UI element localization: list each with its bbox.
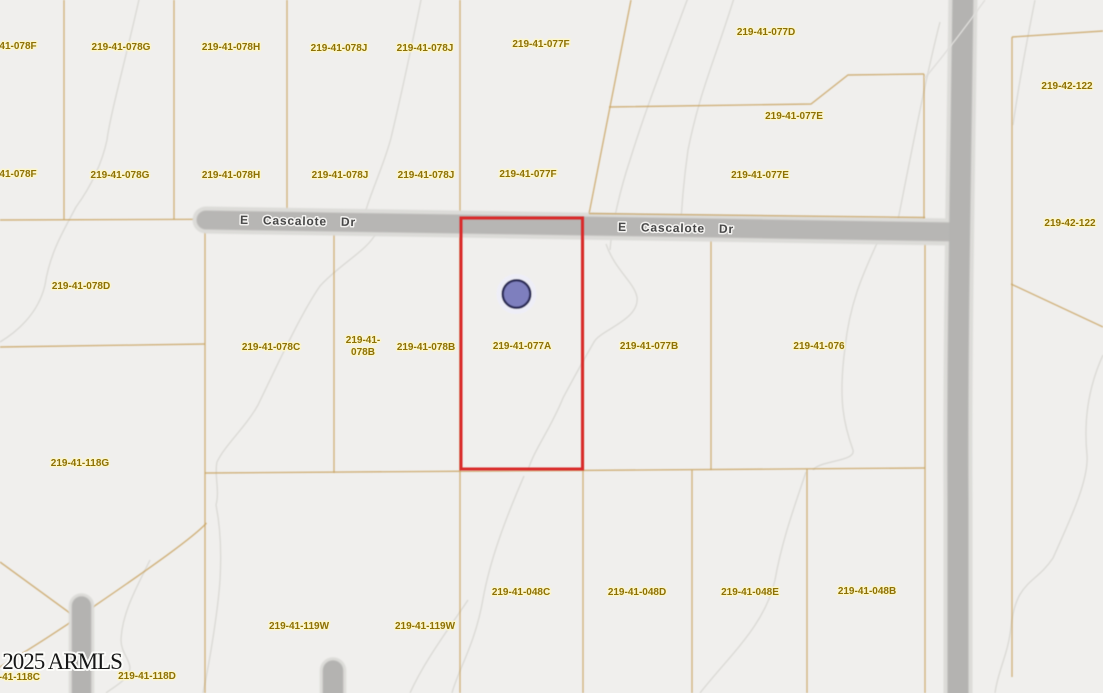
svg-text:E Cascalote Dr: E Cascalote Dr xyxy=(618,220,734,236)
svg-text:219-41-048B: 219-41-048B xyxy=(838,586,896,597)
svg-text:219-41-078J: 219-41-078J xyxy=(312,170,369,181)
svg-text:219-41-078J: 219-41-078J xyxy=(311,43,368,54)
svg-text:219-41-077A: 219-41-077A xyxy=(493,341,551,352)
svg-text:219-41-078G: 219-41-078G xyxy=(91,170,150,181)
svg-text:219-41-078J: 219-41-078J xyxy=(397,43,454,54)
svg-text:219-41-078F: 219-41-078F xyxy=(0,169,37,180)
svg-text:219-41-077F: 219-41-077F xyxy=(512,39,569,50)
svg-text:219-41-076: 219-41-076 xyxy=(793,341,845,352)
svg-text:219-41-119W: 219-41-119W xyxy=(269,621,330,632)
svg-text:219-41-077F: 219-41-077F xyxy=(499,169,556,180)
svg-text:219-41-078D: 219-41-078D xyxy=(52,281,110,292)
svg-text:078B: 078B xyxy=(351,347,375,358)
svg-text:219-42-122: 219-42-122 xyxy=(1044,218,1096,229)
svg-text:219-42-122: 219-42-122 xyxy=(1041,81,1093,92)
svg-text:219-41-118G: 219-41-118G xyxy=(51,458,110,469)
svg-text:219-41-078C: 219-41-078C xyxy=(242,342,300,353)
svg-text:219-41-078B: 219-41-078B xyxy=(397,342,455,353)
svg-text:219-41-: 219-41- xyxy=(346,335,380,346)
svg-text:219-41-078H: 219-41-078H xyxy=(202,42,260,53)
svg-text:219-41-078F: 219-41-078F xyxy=(0,41,37,52)
svg-text:219-41-119W: 219-41-119W xyxy=(395,621,456,632)
svg-text:219-41-077B: 219-41-077B xyxy=(620,341,678,352)
svg-text:219-41-048C: 219-41-048C xyxy=(492,587,550,598)
svg-text:219-41-118D: 219-41-118D xyxy=(118,671,176,682)
svg-text:219-41-077D: 219-41-077D xyxy=(737,27,795,38)
svg-text:219-41-077E: 219-41-077E xyxy=(731,170,789,181)
svg-text:219-41-048E: 219-41-048E xyxy=(721,587,779,598)
svg-text:219-41-078H: 219-41-078H xyxy=(202,170,260,181)
svg-text:219-41-077E: 219-41-077E xyxy=(765,111,823,122)
svg-text:219-41-078G: 219-41-078G xyxy=(92,42,151,53)
svg-text:219-41-078J: 219-41-078J xyxy=(398,170,455,181)
svg-text:E Cascalote Dr: E Cascalote Dr xyxy=(240,213,356,229)
svg-text:219-41-048D: 219-41-048D xyxy=(608,587,666,598)
svg-text:© 2025 ARMLS: © 2025 ARMLS xyxy=(0,649,122,674)
